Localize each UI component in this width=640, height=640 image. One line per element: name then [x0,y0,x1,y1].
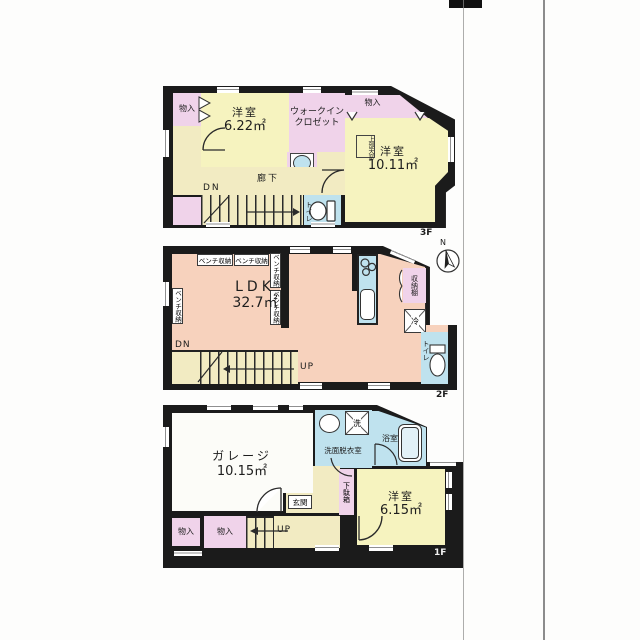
door-arc [322,170,344,193]
chevron [415,112,425,120]
floor2-toilet-icon [428,344,448,378]
window [163,130,169,157]
floor2-bench-storage-box: ベンチ収納 [172,288,183,324]
scan-fold-line-left [463,0,464,640]
floor1-washbasin [319,414,340,433]
window [217,87,239,93]
floor1-bedroom-area: 6.15㎡ [357,504,445,519]
floor3-dn-label: DN [203,183,221,193]
floor3-bedroom1-area: 6.22㎡ [201,120,289,135]
stair-arrow-head [293,208,300,216]
floor2-refrigerator-label: 冷 [411,316,419,327]
window [430,460,456,466]
window [368,383,390,389]
floor3-closet-chevron-icon [346,111,358,121]
floor1-washer: 洗 [345,411,369,435]
floor3-storage-top-left-label: 物入 [173,104,201,113]
floor2-kitchen-sink [360,289,375,320]
stair-break-line [198,352,222,382]
floor2-bench-storage-box: ベンチ収納 [197,254,233,266]
floor2-dn-label: DN [175,340,191,350]
door-arc [257,488,281,512]
scan-black-tab [449,0,482,8]
floor1-shoe-cabinet-label: 下駄箱 [342,482,352,503]
floor3-floor-label: 3F [420,228,432,238]
floor3-hall-right [317,152,345,168]
window [289,404,303,410]
floor2-storage-shelf-label: 収納棚 [410,275,420,296]
window [446,472,452,488]
stair-arrow-head [223,365,230,373]
floor2-stairs-marks-icon [172,350,298,384]
bench-storage-label: ベンチ収納 [173,290,183,323]
floor3-closet-chevron-icon [414,111,426,121]
floor3-storage-top-right-label: 物入 [350,98,395,107]
floor2-refrigerator: 冷 [404,309,426,333]
window [253,404,278,410]
window [303,87,321,93]
burner [368,263,375,270]
window [206,222,230,227]
floor1-washroom-label: 洗面脱衣室 [314,447,372,456]
floor2-ldk-area: 32.7㎡ [205,295,305,311]
floor1-washroom-door-arc-icon [330,457,353,477]
floor1-garage-name: ガレージ [197,450,287,464]
door-arc [331,458,352,476]
floor3-wic-label-line2: クロゼット [289,118,345,128]
floor2-storage-shelf-room: 収納棚 [403,268,426,303]
window [369,545,393,551]
floorplan-page: 物入 洋室 6.22㎡ ウォークイン クロゼット 物入 洋室 10.11㎡ 上部… [0,0,640,640]
window [207,404,231,410]
stair-break-line [204,196,229,223]
window [163,427,169,447]
floor1-floor-label: 1F [434,548,446,558]
floor3-bedroom2-area: 10.11㎡ [348,159,438,174]
floor1-up-label: UP [277,525,291,535]
floor1-garage-door-arc-icon [256,487,282,513]
floor1-bedroom-name: 洋室 [357,491,445,504]
floor3-storage-bottom-left-room [173,197,201,225]
floor1-garage-area: 10.15㎡ [197,465,287,480]
window [352,90,378,95]
floor2-stove-icon [359,257,377,277]
door-arc [375,444,397,465]
window [290,247,310,253]
compass-icon [434,247,462,275]
floor1-bathroom-label: 浴室 [373,434,407,443]
floor1-washer-label: 洗 [353,418,361,429]
floor2-floor-label: 2F [436,390,448,400]
floor3-hall-left [173,126,201,195]
floor1-storage-a-label: 物入 [172,527,200,536]
window [448,137,454,162]
floor3-toilet-label: トイレ [305,198,313,224]
window [315,545,339,551]
window [163,282,169,306]
floor3-bedroom1-name: 洋室 [201,107,289,120]
floor1-storage-b-label: 物入 [204,527,246,536]
floor3-bedroom2-door-arc-icon [320,169,345,194]
floor3-stairs-marks-icon [201,195,303,225]
door-arc [399,286,402,302]
burner [363,269,370,276]
floor1-entrance-label-box: 玄関 [288,495,312,509]
door-arc [399,270,402,286]
floor1-bathroom-door-arc-icon [374,443,398,466]
door-arc [359,516,382,540]
window [174,551,202,556]
toilet-bowl [430,354,445,376]
chevron [347,112,357,120]
bench-storage-label: ベンチ収納 [235,255,268,265]
toilet-tank [430,345,445,353]
floor2-bench-storage-box: ベンチ収納 [234,254,269,266]
floor2-up-label: UP [300,362,314,372]
scan-fold-line-right [543,0,545,640]
window [311,222,335,227]
toilet-tank [327,201,335,221]
floor3-skylight-note: 上部天窓 [356,135,375,158]
floor3-wic-label-line1: ウォークイン [289,107,345,117]
compass-north-label: N [440,238,446,247]
floor2-ldk-name: LDK [205,279,305,295]
bench-storage-label: ベンチ収納 [199,255,232,265]
stair-arrow-head [250,527,258,535]
burner [361,259,369,267]
window [333,247,351,253]
window [446,494,452,510]
floor2-toilet-label: トイレ [422,336,430,364]
floor1-entrance-label: 玄関 [293,497,308,508]
window [300,383,322,389]
floor2-closet-double-door-icon [387,269,403,303]
floor3-hallway-label: 廊下 [250,174,286,184]
floor1-stairs-marks-icon [246,516,302,548]
